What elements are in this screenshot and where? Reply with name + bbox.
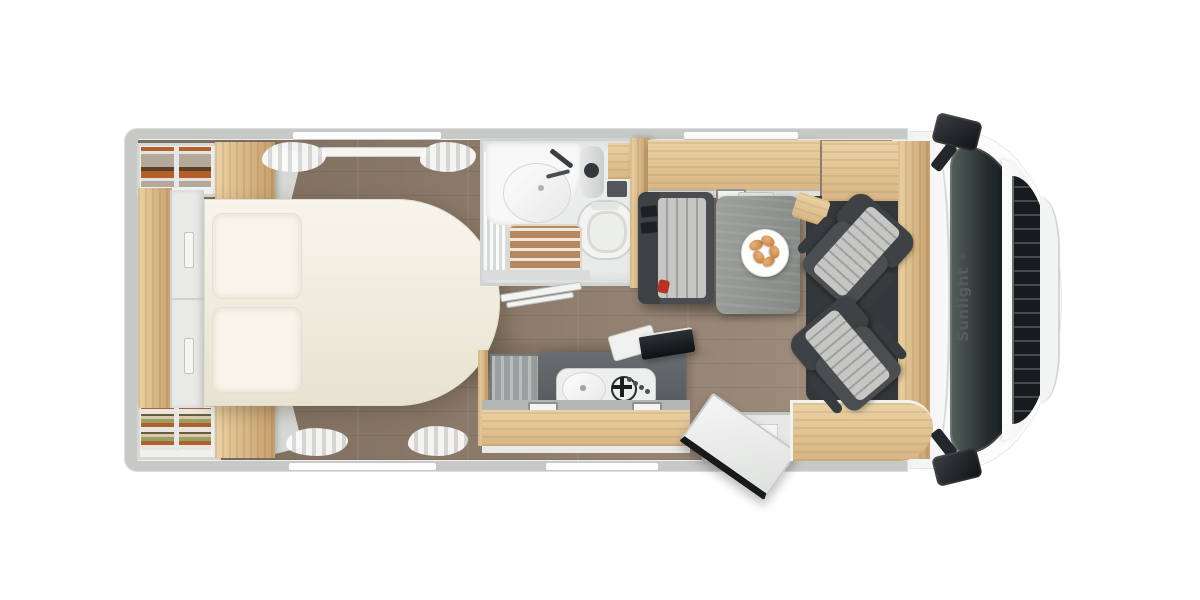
- hob-knob: [645, 389, 650, 394]
- hob-knob: [639, 385, 644, 390]
- breakfast-plate: [741, 229, 789, 277]
- bathroom-threshold: [482, 270, 590, 280]
- skylight-bar: [318, 147, 430, 157]
- door-seam: [172, 298, 204, 300]
- overhead-cabinet: [648, 140, 820, 192]
- double-bed: [204, 199, 500, 406]
- door-handle: [184, 338, 194, 374]
- toilet-hinge: [591, 202, 619, 210]
- kitchen-cabinet-front: [482, 410, 690, 446]
- kitchen-cabinet-base: [482, 446, 690, 453]
- pillow: [212, 307, 302, 393]
- window-slot: [292, 131, 442, 140]
- sink-drain: [538, 185, 544, 191]
- toilet-lid: [587, 211, 627, 253]
- window-slot: [545, 462, 659, 471]
- door-handle: [184, 232, 194, 268]
- headrest-mount: [640, 221, 657, 234]
- front-bumper: [1040, 196, 1060, 404]
- wardrobe-rear-bottom: [137, 404, 221, 460]
- wardrobe-folded-clothes: [179, 408, 211, 450]
- motorhome-floorplan: Sunlight ✳: [0, 0, 1200, 600]
- wardrobe-clothes: [179, 147, 211, 187]
- wardrobe-clothes: [141, 147, 174, 187]
- hob-burner-cross: [620, 377, 624, 397]
- window-slot: [288, 462, 437, 471]
- brand-logo: Sunlight ✳: [952, 241, 974, 351]
- headrest-mount: [640, 205, 657, 218]
- window-slot: [683, 131, 799, 140]
- kitchen-sink-drain: [580, 385, 586, 391]
- brand-label: Sunlight: [954, 268, 972, 342]
- hob-burner-ring: [611, 376, 637, 402]
- sun-icon: ✳: [956, 250, 971, 261]
- hob-knob: [633, 381, 638, 386]
- bedside-cabinet-bottom: [215, 400, 275, 458]
- hob-knob: [627, 377, 632, 382]
- cylinder-cap: [584, 163, 599, 178]
- wardrobe-folded-clothes: [141, 408, 174, 450]
- headboard-doors: [170, 190, 204, 408]
- vent-box: [607, 181, 627, 197]
- headboard-wood-panel: [138, 188, 172, 408]
- pillow: [212, 213, 302, 299]
